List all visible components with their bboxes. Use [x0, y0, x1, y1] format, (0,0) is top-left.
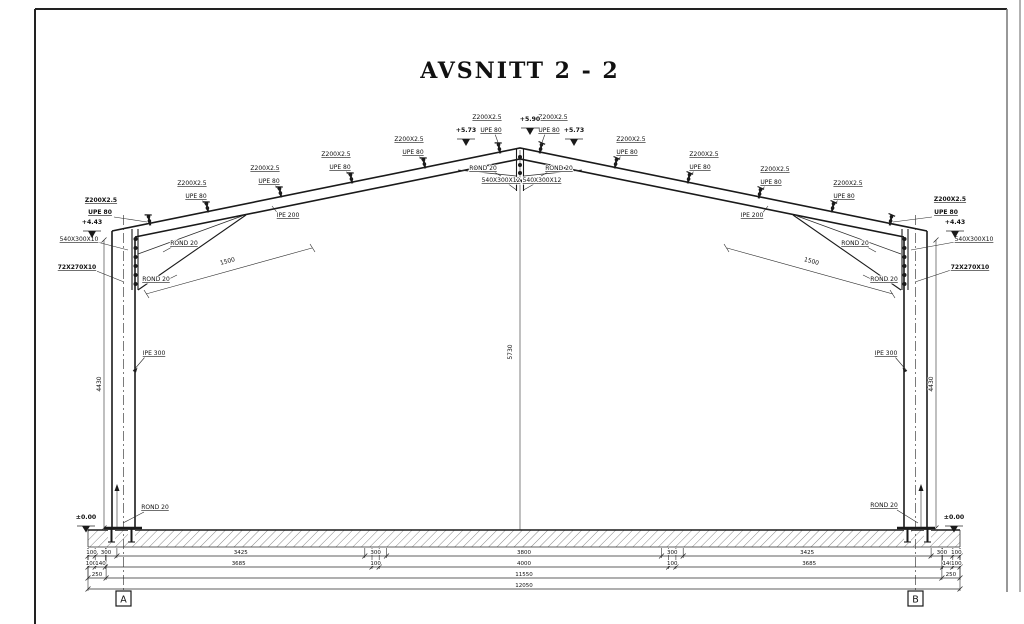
column-height-dim-right: 4430: [928, 376, 935, 391]
rod-label-apex-right: ROND 20: [545, 165, 573, 172]
dim-r1-7: 300: [937, 550, 948, 556]
purlin-upe-label: UPE 80: [538, 127, 560, 134]
rafter-label-right: IPE 200: [741, 212, 764, 219]
left-haunch: [132, 215, 315, 298]
rafters: [112, 148, 927, 530]
rod-label-haunch-left-2: ROND 20: [142, 276, 170, 283]
dim-r2-5: 100: [667, 561, 678, 567]
dim-r1-1: 300: [101, 550, 112, 556]
level-ridge-right: +5.73: [564, 127, 584, 134]
purlin-z-label: Z200X2.5: [250, 165, 279, 172]
grid-axis-a: A: [120, 595, 127, 606]
dim-r1-5: 300: [667, 550, 678, 556]
generated-details: Z200X2.5UPE 80Z200X2.5UPE 80Z200X2.5UPE …: [85, 114, 966, 592]
rafter-label-left: IPE 200: [277, 212, 300, 219]
purlin-upe-label: UPE 80: [833, 193, 855, 200]
eave-plate-label-right: 540X300X10: [955, 236, 994, 243]
purlin-z-label: Z200X2.5: [321, 151, 350, 158]
section-drawing: AVSNITT 2 - 2: [0, 0, 1024, 624]
purlin-upe-label: UPE 80: [185, 193, 207, 200]
level-base-left: ±0.00: [76, 514, 97, 521]
purlin-z-label: Z200X2.5: [177, 180, 206, 187]
rod-label-haunch-left-1: ROND 20: [170, 240, 198, 247]
purlin-upe-label: UPE 80: [689, 164, 711, 171]
purlin-z-label: Z200X2.5: [689, 151, 718, 158]
purlin-z-label: Z200X2.5: [85, 197, 117, 204]
dim-r1-8: 100: [951, 550, 962, 556]
dim-r2-3: 100: [370, 561, 381, 567]
level-eave-right: +4.43: [945, 219, 965, 226]
level-ridge-left: +5.73: [456, 127, 476, 134]
dim-r2-2: 3685: [232, 561, 246, 567]
dim-r2-1: 140: [95, 561, 106, 567]
purlin-z-label: Z200X2.5: [394, 136, 423, 143]
purlin-upe-label: UPE 80: [760, 179, 782, 186]
purlin-z-label: Z200X2.5: [833, 180, 862, 187]
column-label-right: IPE 300: [875, 350, 898, 357]
rod-label-base-left: ROND 20: [141, 504, 169, 511]
rod-label-haunch-right-2: ROND 20: [870, 276, 898, 283]
purlin-z-label: Z200X2.5: [616, 136, 645, 143]
purlin-upe-label: UPE 80: [258, 178, 280, 185]
level-ridge-top: +5.90: [520, 116, 541, 123]
dim-r3-0: 250: [92, 572, 103, 578]
grid-axis-b: B: [912, 595, 919, 606]
purlin-upe-label: UPE 80: [616, 149, 638, 156]
purlin-upe-label: UPE 80: [402, 149, 424, 156]
eave-stiffener-label-right: 72X270X10: [951, 264, 989, 271]
dim-r1-0: 100: [86, 550, 97, 556]
purlin-z-label: Z200X2.5: [538, 114, 567, 121]
dim-r1-6: 3425: [800, 550, 814, 556]
purlin-upe-label: UPE 80: [329, 164, 351, 171]
purlin-upe-label: UPE 80: [934, 209, 958, 216]
right-haunch: [724, 215, 908, 298]
drawing-sheet: AVSNITT 2 - 2: [0, 0, 1024, 624]
purlin-upe-label: UPE 80: [480, 127, 502, 134]
grid-markers: A B: [116, 591, 923, 606]
purlin-upe-label: UPE 80: [88, 209, 112, 216]
dim-r2-8: 100: [951, 561, 962, 567]
dim-r3-1: 11550: [515, 572, 533, 578]
column-label-left: IPE 300: [143, 350, 166, 357]
rod-label-haunch-right-1: ROND 20: [841, 240, 869, 247]
purlin-z-label: Z200X2.5: [934, 196, 966, 203]
rod-label-apex-left: ROND 20: [469, 165, 497, 172]
apex-plate-label-right: 540X300X12: [523, 177, 562, 184]
rod-label-base-right: ROND 20: [870, 502, 898, 509]
purlin-z-label: Z200X2.5: [760, 166, 789, 173]
dim-r1-2: 3425: [234, 550, 248, 556]
level-base-right: ±0.00: [944, 514, 965, 521]
ridge-height-dim: 5730: [507, 344, 514, 359]
dim-r3-2: 250: [946, 572, 957, 578]
haunch-dim-right: 1500: [803, 256, 820, 267]
drawing-title: AVSNITT 2 - 2: [419, 58, 620, 84]
dim-r2-4: 4000: [517, 561, 531, 567]
purlin-z-label: Z200X2.5: [472, 114, 501, 121]
dim-r2-6: 3685: [802, 561, 816, 567]
apex-plate-label-left: 540X300X12: [482, 177, 521, 184]
column-height-dim-left: 4430: [96, 376, 103, 391]
level-eave-left: +4.43: [82, 219, 102, 226]
haunch-dim-left: 1500: [219, 256, 236, 267]
dim-r1-3: 300: [370, 550, 381, 556]
level-marks: +5.90 +5.73 +5.73 +4.43 +4.43 ±0.00 ±0.0…: [76, 116, 965, 533]
eave-plate-label-left: 540X300X10: [60, 236, 99, 243]
dim-r1-4: 3800: [517, 550, 531, 556]
eave-stiffener-label-left: 72X270X10: [58, 264, 96, 271]
dim-total: 12050: [515, 583, 533, 589]
floor-slab: [88, 530, 960, 547]
label-leaders: [94, 172, 955, 523]
